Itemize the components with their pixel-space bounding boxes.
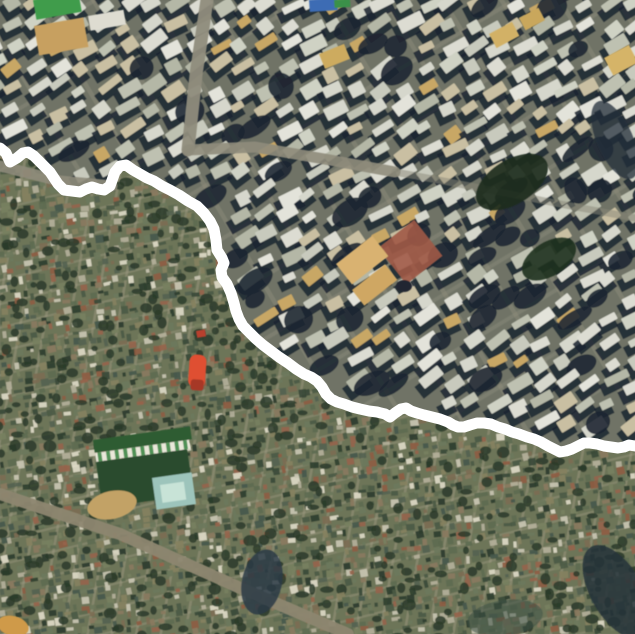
blue-roof-building	[309, 0, 338, 12]
satellite-map[interactable]	[0, 0, 635, 634]
map-viewport[interactable]	[0, 0, 635, 634]
school-yard-shadow	[396, 280, 412, 292]
red-building-annex	[190, 379, 204, 391]
blue-court-inner	[160, 482, 186, 503]
green-roof-small	[334, 0, 351, 8]
